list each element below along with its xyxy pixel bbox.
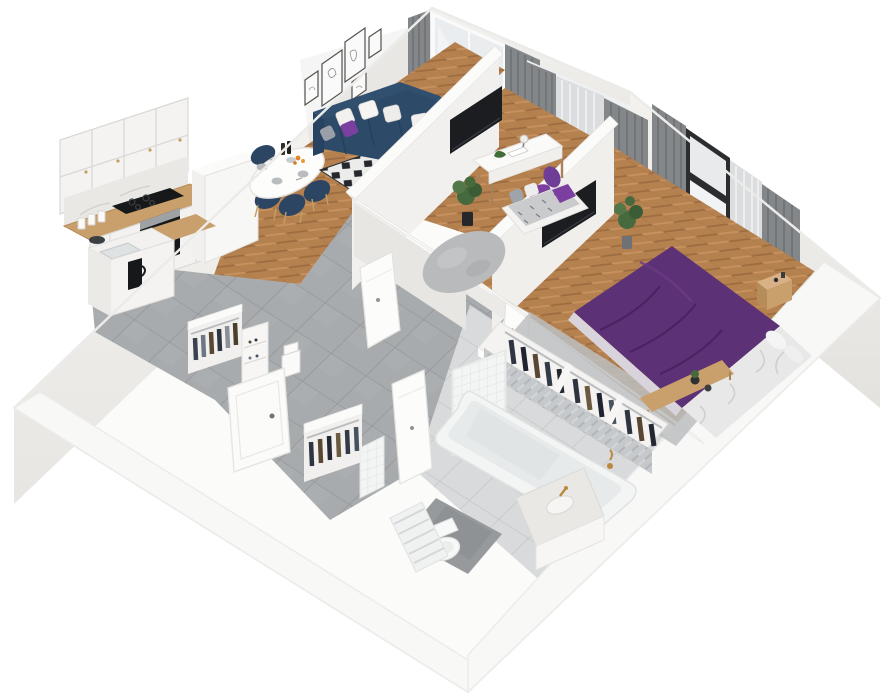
floor-plan-svg [0, 0, 889, 700]
hallway-floor-tiles [92, 205, 505, 520]
office-daybed [502, 182, 588, 234]
divider-walls [346, 46, 704, 444]
dining-chair [247, 141, 334, 220]
back-left-wall [14, 8, 432, 504]
back-right-wall [432, 8, 880, 408]
office-curtain-left [527, 62, 556, 198]
kitchen-fridge-cabinet [192, 152, 258, 263]
bedroom-plant [614, 196, 643, 249]
kitchen-backsplash-marble [64, 156, 188, 228]
kitchen [60, 98, 258, 316]
kitchen-hob [112, 188, 184, 214]
dining-set [242, 137, 334, 224]
office-bedroom-divider [488, 116, 618, 330]
entry-wardrobe [188, 304, 268, 390]
desk-lamp [520, 135, 528, 152]
living-hall-door [360, 252, 400, 348]
bathroom [360, 348, 652, 574]
coffee-table-purple-vase [388, 164, 393, 173]
bedroom-door [502, 300, 530, 366]
bedroom-nightstand [757, 272, 792, 310]
office-desk [473, 134, 562, 206]
kitchen-canisters [78, 211, 105, 229]
building-silhouette [14, 8, 880, 692]
kitchen-bowl [89, 236, 105, 244]
dining-table [242, 137, 331, 208]
coffee-table [369, 155, 424, 201]
sofa-pillow-white-2 [358, 100, 379, 120]
sofa-pillow-gray [319, 125, 336, 142]
sofa-pillow-white-1 [335, 108, 355, 128]
art-frame-2 [322, 50, 342, 106]
living-curtain-left [408, 10, 430, 122]
bath-half-tile-wall [360, 436, 384, 498]
bed [568, 246, 812, 438]
living-floor-wood [205, 42, 505, 330]
kitchen-upper-cabinets [60, 98, 188, 214]
kitchen-sink [100, 243, 140, 259]
kitchen-lower-cabinets [90, 198, 216, 298]
office-floor-wood [353, 88, 616, 242]
vanity-gold-tap [560, 488, 566, 496]
sofa-pillow-purple [340, 119, 359, 138]
front-left-wall-band [14, 392, 468, 692]
art-frame-1 [305, 71, 318, 105]
bedroom-curtain-right [762, 184, 800, 332]
bathtub [435, 391, 636, 531]
front-right-wall-band [468, 262, 880, 692]
bedroom-bath-wall-cap [462, 269, 704, 444]
office-round-rug [413, 218, 516, 305]
bench-plant-pot-2 [705, 385, 712, 392]
sofa-chaise [398, 140, 450, 186]
bedroom [478, 196, 812, 458]
bedroom-hall-walls [466, 277, 530, 366]
art-frame-5 [352, 72, 366, 100]
towel-ladder [390, 502, 448, 572]
bedroom-open-wardrobe [478, 322, 668, 458]
bedroom-curtain-left [652, 104, 686, 262]
bedroom-curtain-sheer [730, 160, 762, 302]
balcony-chair-silhouette [468, 88, 484, 122]
bench-plant-pot-1 [691, 376, 700, 385]
office-curtain-sheer [556, 76, 604, 230]
bath-dark-mat [402, 498, 502, 574]
kitchen-french-press [128, 258, 145, 290]
floors [92, 42, 848, 585]
kitchen-sink-peninsula [88, 214, 216, 316]
art-frame-3 [345, 28, 365, 82]
kitchen-oven [140, 208, 180, 268]
apartment-floor-plan-render [0, 0, 889, 700]
sofa-sectional [313, 82, 450, 186]
hallway-entry [188, 304, 432, 484]
dining-tableware [257, 141, 309, 185]
bed-sheets-white [682, 326, 812, 438]
bed-foot-bench [640, 360, 734, 418]
living-office-divider [346, 46, 503, 290]
bedroom-radiator [696, 244, 756, 308]
bathroom-floor-tiles [415, 305, 665, 585]
sofa-pillow-white-3 [383, 104, 402, 122]
living-rug [320, 143, 455, 207]
front-wall-bands [14, 262, 880, 692]
sofa-area [313, 82, 455, 207]
office-tv [450, 86, 502, 154]
office [413, 134, 588, 306]
bedroom-window [652, 104, 800, 332]
desk-book [508, 147, 528, 157]
entry-door [228, 368, 290, 472]
shoe-cabinet [242, 322, 268, 390]
bath-herringbone-wall [484, 348, 652, 474]
bathroom-door-ajar [392, 370, 432, 484]
art-frame-4 [369, 29, 381, 58]
balcony-door [431, 12, 507, 150]
bedroom-tv [542, 180, 596, 248]
office-window [527, 60, 648, 264]
wall-top-edges [14, 8, 880, 408]
bedroom-floor-wood [466, 148, 848, 445]
balcony-door-glass [435, 17, 503, 145]
toilet [425, 518, 462, 564]
sofa-pillow-white-4 [411, 113, 429, 131]
office-chair [527, 164, 564, 216]
bed-duvet-purple [574, 246, 780, 408]
bedroom-rug-strip [506, 312, 700, 446]
tub-gold-faucet [607, 463, 613, 469]
daybed-pillow-white [523, 182, 539, 197]
desk-dinosaur-toy [494, 151, 506, 158]
kitchen-countertop [64, 184, 216, 240]
wall-art-frames [305, 28, 381, 106]
bath-square-tile-wall [452, 350, 506, 456]
office-plant [453, 177, 483, 227]
living-curtain-right [505, 44, 540, 206]
hall-wardrobe [304, 404, 362, 482]
storage-boxes [282, 342, 300, 378]
office-curtain-right [604, 98, 648, 264]
living-hall-wall [350, 195, 470, 348]
bedroom-window-frame [686, 128, 730, 262]
daybed-pillow-gray [508, 188, 524, 204]
daybed-purple-throw [552, 184, 576, 203]
bath-vanity [516, 468, 604, 570]
